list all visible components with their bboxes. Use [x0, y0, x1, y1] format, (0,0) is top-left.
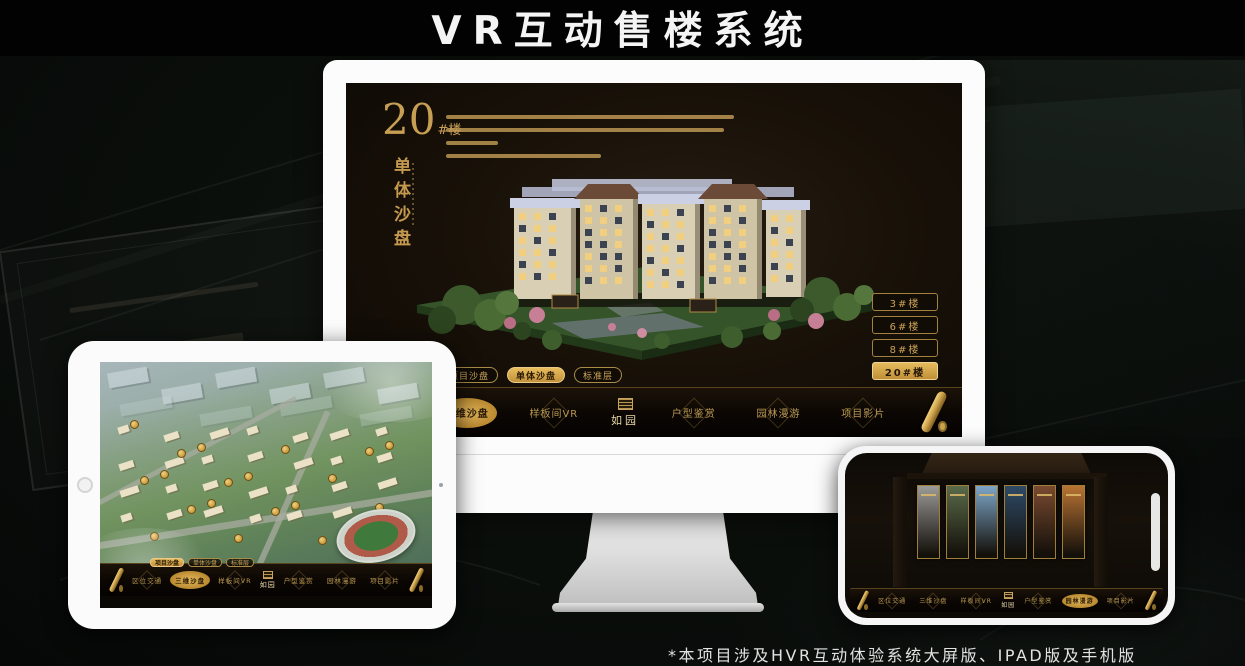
nav-item-1[interactable]: 区位交通	[127, 571, 167, 589]
gallery-panel-5[interactable]	[1033, 485, 1056, 559]
building-model-illustration	[402, 155, 882, 390]
building-button-3[interactable]: 8#楼	[872, 339, 938, 357]
view-tab-3[interactable]: 标准层	[574, 367, 622, 383]
building-badge[interactable]	[177, 449, 186, 458]
building-badge[interactable]	[160, 470, 169, 479]
brand-logo: 如园	[611, 398, 639, 428]
view-tab-1[interactable]: 项目沙盘	[150, 558, 184, 567]
nav-item-6[interactable]: 项目影片	[1103, 594, 1139, 608]
brand-logo: 如园	[260, 571, 276, 590]
building-badge[interactable]	[365, 447, 374, 456]
view-tabs-tablet: 项目沙盘单体沙盘标准层	[150, 558, 254, 567]
description-line	[446, 128, 724, 132]
view-tab-2[interactable]: 单体沙盘	[188, 558, 222, 567]
building-badge[interactable]	[224, 478, 233, 487]
panel-caption-decor	[979, 494, 994, 496]
nav-item-5[interactable]: 园林漫游	[1062, 594, 1098, 608]
view-tab-2[interactable]: 单体沙盘	[507, 367, 565, 383]
building-badge[interactable]	[234, 534, 243, 543]
poster-canvas: VR互动售楼系统 20#楼 单体沙盘	[0, 0, 1245, 666]
description-line	[446, 115, 734, 119]
background-aerial-photo	[977, 60, 1245, 438]
nav-item-5[interactable]: 园林漫游	[748, 398, 808, 428]
building-badge[interactable]	[244, 472, 253, 481]
description-line	[446, 141, 498, 145]
gallery-panel-2[interactable]	[946, 485, 969, 559]
footnote: *本项目涉及HVR互动体验系统大屏版、IPAD版及手机版	[668, 642, 1137, 666]
tablet-camera	[439, 483, 443, 487]
nav-item-2[interactable]: 三维沙盘	[170, 571, 210, 589]
pavilion-column	[1094, 477, 1108, 587]
building-badge[interactable]	[130, 420, 139, 429]
scroll-icon[interactable]	[856, 591, 869, 610]
brand-logo: 如园	[1001, 592, 1015, 609]
pavilion-beam	[922, 453, 1092, 475]
tablet-home-button[interactable]	[77, 477, 93, 493]
pavilion-column	[893, 477, 907, 587]
building-badge[interactable]	[385, 441, 394, 450]
phone-device: 区位交通三维沙盘样板间VR如园户型鉴赏园林漫游项目影片	[838, 446, 1175, 625]
nav-item-3[interactable]: 样板间VR	[213, 571, 256, 589]
nav-item-1[interactable]: 区位交通	[874, 594, 910, 608]
tablet-screen: 项目沙盘单体沙盘标准层 区位交通三维沙盘样板间VR如园户型鉴赏园林漫游项目影片	[100, 362, 432, 608]
bottom-nav-phone: 区位交通三维沙盘样板间VR如园户型鉴赏园林漫游项目影片	[850, 588, 1163, 612]
pavilion-beam	[907, 473, 1107, 479]
tablet-device: 项目沙盘单体沙盘标准层 区位交通三维沙盘样板间VR如园户型鉴赏园林漫游项目影片	[68, 341, 456, 629]
nav-item-3[interactable]: 样板间VR	[521, 398, 586, 428]
phone-screen: 区位交通三维沙盘样板间VR如园户型鉴赏园林漫游项目影片	[845, 453, 1168, 618]
nav-item-5[interactable]: 园林漫游	[322, 571, 362, 589]
building-badge[interactable]	[271, 507, 280, 516]
building-number: 20	[382, 95, 435, 144]
building-badge[interactable]	[207, 499, 216, 508]
nav-item-4[interactable]: 户型鉴赏	[1020, 594, 1056, 608]
title-band: VR互动售楼系统	[0, 0, 1245, 56]
building-badge[interactable]	[291, 501, 300, 510]
view-tabs: 项目沙盘单体沙盘标准层	[440, 367, 622, 383]
panel-caption-decor	[1037, 494, 1052, 496]
view-tab-3[interactable]: 标准层	[226, 558, 254, 567]
building-heading: 20#楼	[382, 99, 461, 141]
logo-seal-icon	[263, 571, 273, 579]
logo-seal-icon	[1004, 592, 1013, 599]
tablet-nav-underlay	[100, 596, 432, 608]
monitor-stand-base	[552, 603, 764, 612]
bottom-nav-tablet: 区位交通三维沙盘样板间VR如园户型鉴赏园林漫游项目影片	[100, 563, 432, 596]
building-badge[interactable]	[140, 476, 149, 485]
building-button-2[interactable]: 6#楼	[872, 316, 938, 334]
nav-item-3[interactable]: 样板间VR	[957, 594, 996, 608]
gallery-panel-1[interactable]	[917, 485, 940, 559]
scroll-icon[interactable]	[408, 568, 424, 592]
gallery-panel-4[interactable]	[1004, 485, 1027, 559]
building-badge[interactable]	[328, 474, 337, 483]
building-badge[interactable]	[281, 445, 290, 454]
panel-caption-decor	[950, 494, 965, 496]
panel-caption-decor	[1008, 494, 1023, 496]
gallery-panel-3[interactable]	[975, 485, 998, 559]
panel-caption-decor	[1066, 494, 1081, 496]
building-badge[interactable]	[187, 505, 196, 514]
scroll-icon[interactable]	[1144, 591, 1157, 610]
nav-item-2[interactable]: 三维沙盘	[915, 594, 951, 608]
panel-caption-decor	[921, 494, 936, 496]
logo-seal-icon	[618, 398, 633, 410]
phone-side-highlight	[1151, 493, 1160, 571]
building-button-4[interactable]: 20#楼	[872, 362, 938, 380]
building-badge[interactable]	[318, 536, 327, 545]
building-selector: 3#楼6#楼8#楼20#楼	[872, 293, 938, 380]
nav-item-4[interactable]: 户型鉴赏	[279, 571, 319, 589]
building-badge[interactable]	[197, 443, 206, 452]
nav-item-4[interactable]: 户型鉴赏	[664, 398, 724, 428]
scroll-icon[interactable]	[108, 568, 124, 592]
gallery-panel-6[interactable]	[1062, 485, 1085, 559]
scroll-icon[interactable]	[918, 393, 948, 433]
page-title: VR互动售楼系统	[431, 0, 813, 56]
building-button-1[interactable]: 3#楼	[872, 293, 938, 311]
nav-item-6[interactable]: 项目影片	[365, 571, 405, 589]
nav-item-6[interactable]: 项目影片	[833, 398, 893, 428]
